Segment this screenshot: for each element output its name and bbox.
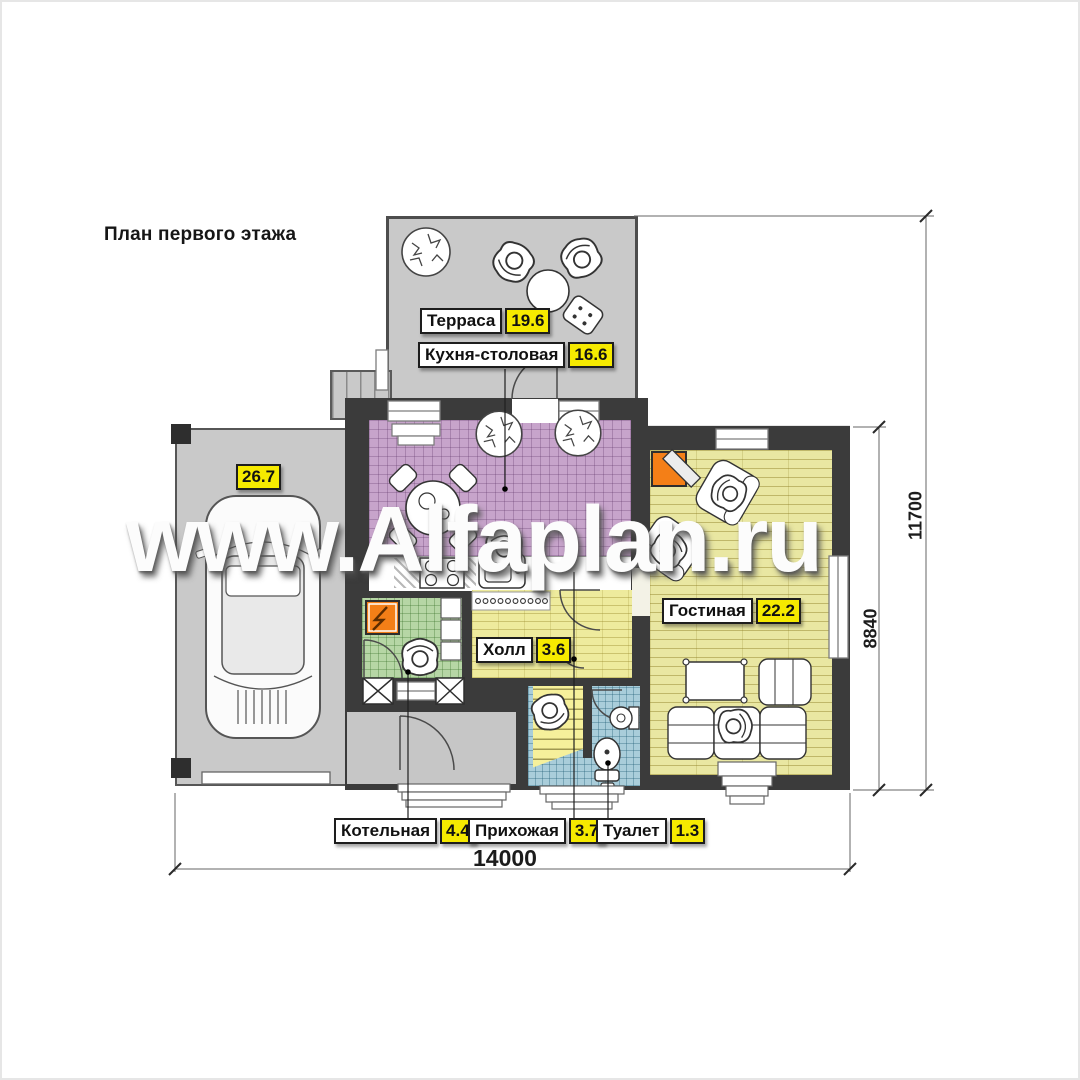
garage-door bbox=[202, 772, 330, 784]
room-label-terrace: Терраса 19.6 bbox=[420, 308, 550, 334]
room-name: Туалет bbox=[596, 818, 667, 844]
washbasin-icon bbox=[610, 707, 639, 729]
terrace-table-icon bbox=[527, 270, 569, 312]
room-name: Холл bbox=[476, 637, 533, 663]
room-name: Котельная bbox=[334, 818, 437, 844]
room-label-wc: Туалет 1.3 bbox=[596, 818, 705, 844]
radiator bbox=[392, 424, 440, 445]
fireplace-icon bbox=[652, 450, 700, 487]
room-label-living: Гостиная 22.2 bbox=[662, 598, 801, 624]
coat-rack-icon bbox=[472, 592, 550, 610]
room-label-kitchen: Кухня-столовая 16.6 bbox=[418, 342, 614, 368]
room-name: Кухня-столовая bbox=[418, 342, 565, 368]
room-area: 16.6 bbox=[568, 342, 613, 368]
room-area: 22.2 bbox=[756, 598, 801, 624]
dimension-width: 14000 bbox=[440, 845, 570, 872]
dimension-height-total: 11700 bbox=[906, 478, 927, 554]
room-area: 19.6 bbox=[505, 308, 550, 334]
room-area: 3.6 bbox=[536, 637, 572, 663]
watermark: www.Alfaplan.ru bbox=[126, 486, 821, 593]
room-area: 1.3 bbox=[670, 818, 706, 844]
room-name: Гостиная bbox=[662, 598, 753, 624]
room-area: 26.7 bbox=[236, 464, 281, 490]
boiler-equipment bbox=[441, 598, 461, 660]
room-name: Прихожая bbox=[468, 818, 566, 844]
tree-icon bbox=[402, 228, 450, 276]
coffee-table-icon bbox=[683, 659, 747, 703]
room-label-boiler: Котельная 4.4 bbox=[334, 818, 476, 844]
person-icon bbox=[528, 690, 572, 735]
room-label-entry: Прихожая 3.7 bbox=[468, 818, 605, 844]
room-label-hall: Холл 3.6 bbox=[476, 637, 571, 663]
room-label-garage: 26.7 bbox=[236, 464, 281, 490]
electric-panel-icon bbox=[366, 601, 399, 634]
floor-plan-canvas: План первого этажа bbox=[0, 0, 1080, 1080]
room-name: Терраса bbox=[420, 308, 502, 334]
dimension-height-main: 8840 bbox=[861, 596, 882, 662]
